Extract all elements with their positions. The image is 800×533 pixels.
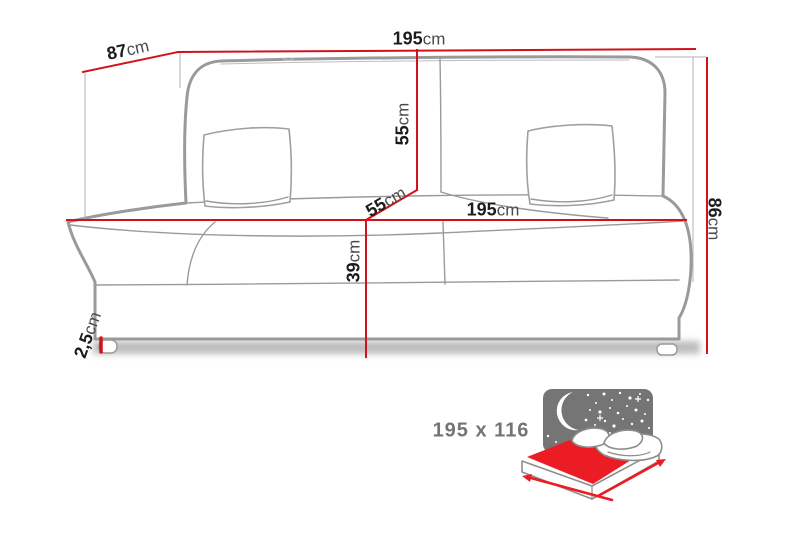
dim-label-seat-height: 39cm (345, 240, 364, 283)
left-pillow (203, 128, 292, 208)
dim-label-total-height: 86cm (705, 198, 724, 241)
dim-unit: cm (705, 218, 724, 241)
dim-value: 195 (467, 200, 497, 220)
dim-unit: cm (394, 103, 413, 126)
dim-value: 55 (393, 125, 413, 145)
dim-label-backrest-height: 55cm (394, 103, 413, 146)
dimension-line-width-top-195 (178, 49, 695, 52)
bed-arrow-left-head (522, 474, 532, 482)
right-pillow (527, 125, 615, 206)
sofa-shadow (93, 341, 700, 354)
dim-value: 39 (344, 262, 364, 282)
dim-unit: cm (423, 30, 446, 49)
sofa-dimension-diagram: 87cm 195cm 55cm 55cm 195cm 39cm 86cm 2,5… (0, 0, 800, 533)
dim-label-width-seat: 195cm (467, 201, 520, 220)
dim-label-width-top: 195cm (393, 30, 446, 49)
diagram-canvas (0, 0, 800, 533)
sleeping-function-icon (522, 389, 666, 500)
dim-unit: cm (497, 201, 520, 220)
sleeping-area-size-label: 195 x 116 (433, 420, 530, 443)
dim-unit: cm (345, 240, 364, 263)
dim-value: 195 (393, 29, 423, 49)
sofa-foot-right (657, 344, 677, 355)
dim-value: 86 (705, 198, 725, 218)
